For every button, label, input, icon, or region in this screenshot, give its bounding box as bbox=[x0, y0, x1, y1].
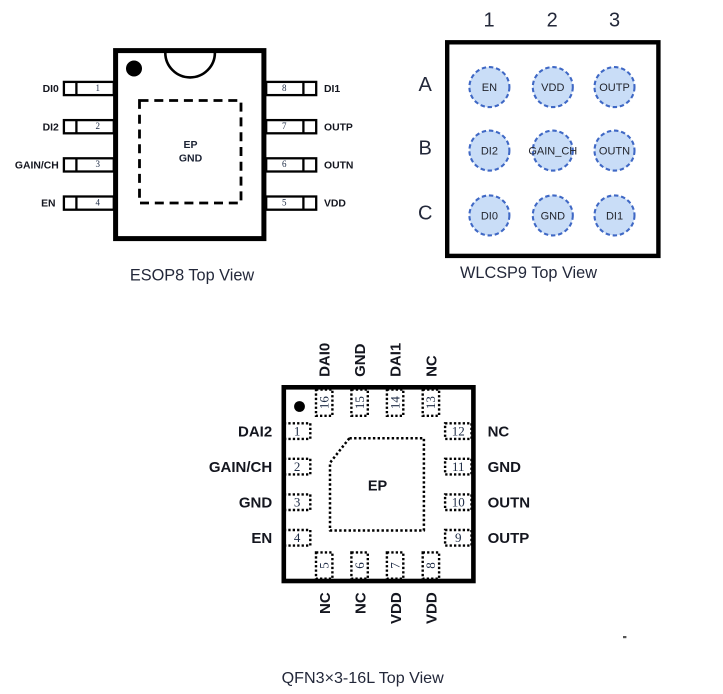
svg-text:DI0: DI0 bbox=[43, 84, 59, 95]
svg-text:1: 1 bbox=[294, 423, 301, 438]
svg-text:GND: GND bbox=[488, 459, 521, 476]
svg-text:A: A bbox=[419, 74, 433, 96]
svg-text:3: 3 bbox=[96, 159, 101, 169]
svg-text:12: 12 bbox=[452, 423, 465, 438]
svg-text:2: 2 bbox=[547, 10, 558, 32]
svg-text:B: B bbox=[419, 138, 432, 160]
svg-text:VDD: VDD bbox=[388, 592, 405, 624]
svg-text:NC: NC bbox=[488, 424, 510, 441]
svg-text:VDD: VDD bbox=[324, 199, 346, 210]
svg-text:OUTP: OUTP bbox=[324, 122, 353, 133]
svg-text:GND: GND bbox=[541, 210, 566, 222]
svg-text:GAIN/CH: GAIN/CH bbox=[209, 459, 272, 476]
svg-text:OUTN: OUTN bbox=[324, 161, 353, 172]
svg-text:16: 16 bbox=[317, 396, 332, 410]
svg-text:ESOP8 Top View: ESOP8 Top View bbox=[130, 267, 255, 285]
svg-text:EN: EN bbox=[41, 199, 55, 210]
svg-text:9: 9 bbox=[455, 530, 462, 545]
svg-text:DI2: DI2 bbox=[43, 122, 59, 133]
svg-text:NC: NC bbox=[423, 355, 440, 377]
svg-text:OUTN: OUTN bbox=[599, 146, 630, 158]
svg-text:EP: EP bbox=[183, 139, 197, 151]
svg-text:DI0: DI0 bbox=[481, 210, 498, 222]
svg-text:DI1: DI1 bbox=[606, 210, 623, 222]
svg-text:DI2: DI2 bbox=[481, 146, 498, 158]
svg-text:WLCSP9 Top View: WLCSP9 Top View bbox=[460, 264, 597, 282]
svg-text:11: 11 bbox=[452, 459, 465, 474]
svg-text:NC: NC bbox=[353, 592, 370, 614]
svg-text:OUTP: OUTP bbox=[488, 530, 530, 547]
svg-text:VDD: VDD bbox=[541, 82, 564, 94]
svg-text:NC: NC bbox=[317, 592, 334, 614]
svg-text:15: 15 bbox=[352, 396, 367, 409]
svg-text:13: 13 bbox=[423, 396, 438, 409]
svg-text:3: 3 bbox=[609, 10, 620, 32]
svg-text:QFN3×3-16L Top View: QFN3×3-16L Top View bbox=[282, 669, 444, 687]
svg-text:4: 4 bbox=[96, 197, 101, 207]
svg-text:OUTP: OUTP bbox=[599, 82, 630, 94]
svg-text:7: 7 bbox=[282, 121, 287, 131]
svg-text:EN: EN bbox=[251, 530, 272, 547]
svg-text:5: 5 bbox=[317, 562, 332, 569]
svg-text:GND: GND bbox=[179, 153, 203, 165]
svg-text:OUTN: OUTN bbox=[488, 495, 530, 512]
svg-text:DAI1: DAI1 bbox=[388, 343, 405, 377]
svg-text:14: 14 bbox=[387, 396, 402, 410]
svg-text:1: 1 bbox=[96, 83, 101, 93]
svg-text:6: 6 bbox=[352, 562, 367, 569]
svg-text:VDD: VDD bbox=[424, 592, 441, 624]
svg-text:2: 2 bbox=[96, 121, 101, 131]
svg-text:DI1: DI1 bbox=[324, 84, 340, 95]
svg-text:5: 5 bbox=[282, 197, 287, 207]
svg-text:6: 6 bbox=[282, 159, 287, 169]
svg-text:3: 3 bbox=[294, 495, 301, 510]
svg-text:DAI2: DAI2 bbox=[238, 424, 272, 441]
svg-text:GND: GND bbox=[239, 495, 273, 512]
svg-text:EP: EP bbox=[368, 478, 388, 494]
svg-text:4: 4 bbox=[294, 530, 301, 545]
svg-text:C: C bbox=[418, 202, 432, 224]
svg-text:GAIN_CH: GAIN_CH bbox=[528, 146, 577, 158]
svg-text:10: 10 bbox=[452, 495, 465, 510]
svg-text:GND: GND bbox=[352, 343, 369, 377]
svg-text:8: 8 bbox=[423, 562, 438, 569]
svg-text:8: 8 bbox=[282, 83, 287, 93]
svg-text:7: 7 bbox=[387, 562, 402, 569]
svg-text:EN: EN bbox=[482, 82, 497, 94]
svg-text:1: 1 bbox=[483, 10, 494, 32]
svg-text:GAIN/CH: GAIN/CH bbox=[15, 161, 59, 172]
svg-text:DAI0: DAI0 bbox=[317, 343, 334, 377]
svg-text:2: 2 bbox=[294, 459, 301, 474]
